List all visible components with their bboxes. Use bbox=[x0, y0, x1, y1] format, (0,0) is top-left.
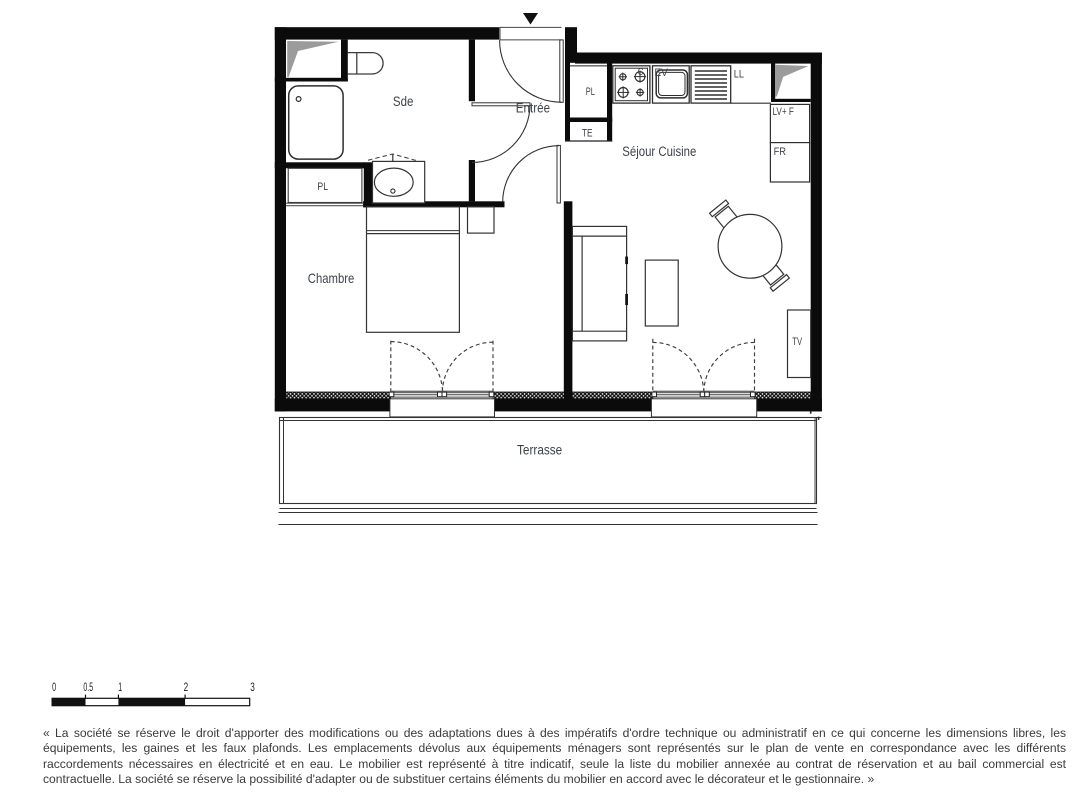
svg-text:1: 1 bbox=[118, 681, 122, 694]
svg-text:TV: TV bbox=[792, 336, 802, 349]
svg-text:Sde: Sde bbox=[393, 93, 413, 109]
svg-text:0.5: 0.5 bbox=[83, 681, 93, 694]
svg-text:LL: LL bbox=[734, 69, 744, 81]
svg-text:LV+ F: LV+ F bbox=[773, 106, 794, 118]
svg-text:C: C bbox=[638, 66, 644, 77]
svg-text:PL: PL bbox=[317, 181, 328, 193]
svg-text:Entrée: Entrée bbox=[516, 101, 550, 116]
svg-text:EV: EV bbox=[654, 67, 667, 79]
svg-text:Séjour Cuisine: Séjour Cuisine bbox=[622, 144, 696, 159]
svg-text:Terrasse: Terrasse bbox=[517, 443, 562, 458]
svg-text:TE: TE bbox=[582, 127, 593, 139]
svg-text:2: 2 bbox=[184, 682, 189, 695]
svg-text:0: 0 bbox=[52, 681, 56, 694]
svg-text:Chambre: Chambre bbox=[308, 271, 354, 286]
svg-text:3: 3 bbox=[250, 682, 255, 695]
svg-text:FR: FR bbox=[774, 146, 786, 158]
svg-text:PL: PL bbox=[586, 84, 595, 97]
